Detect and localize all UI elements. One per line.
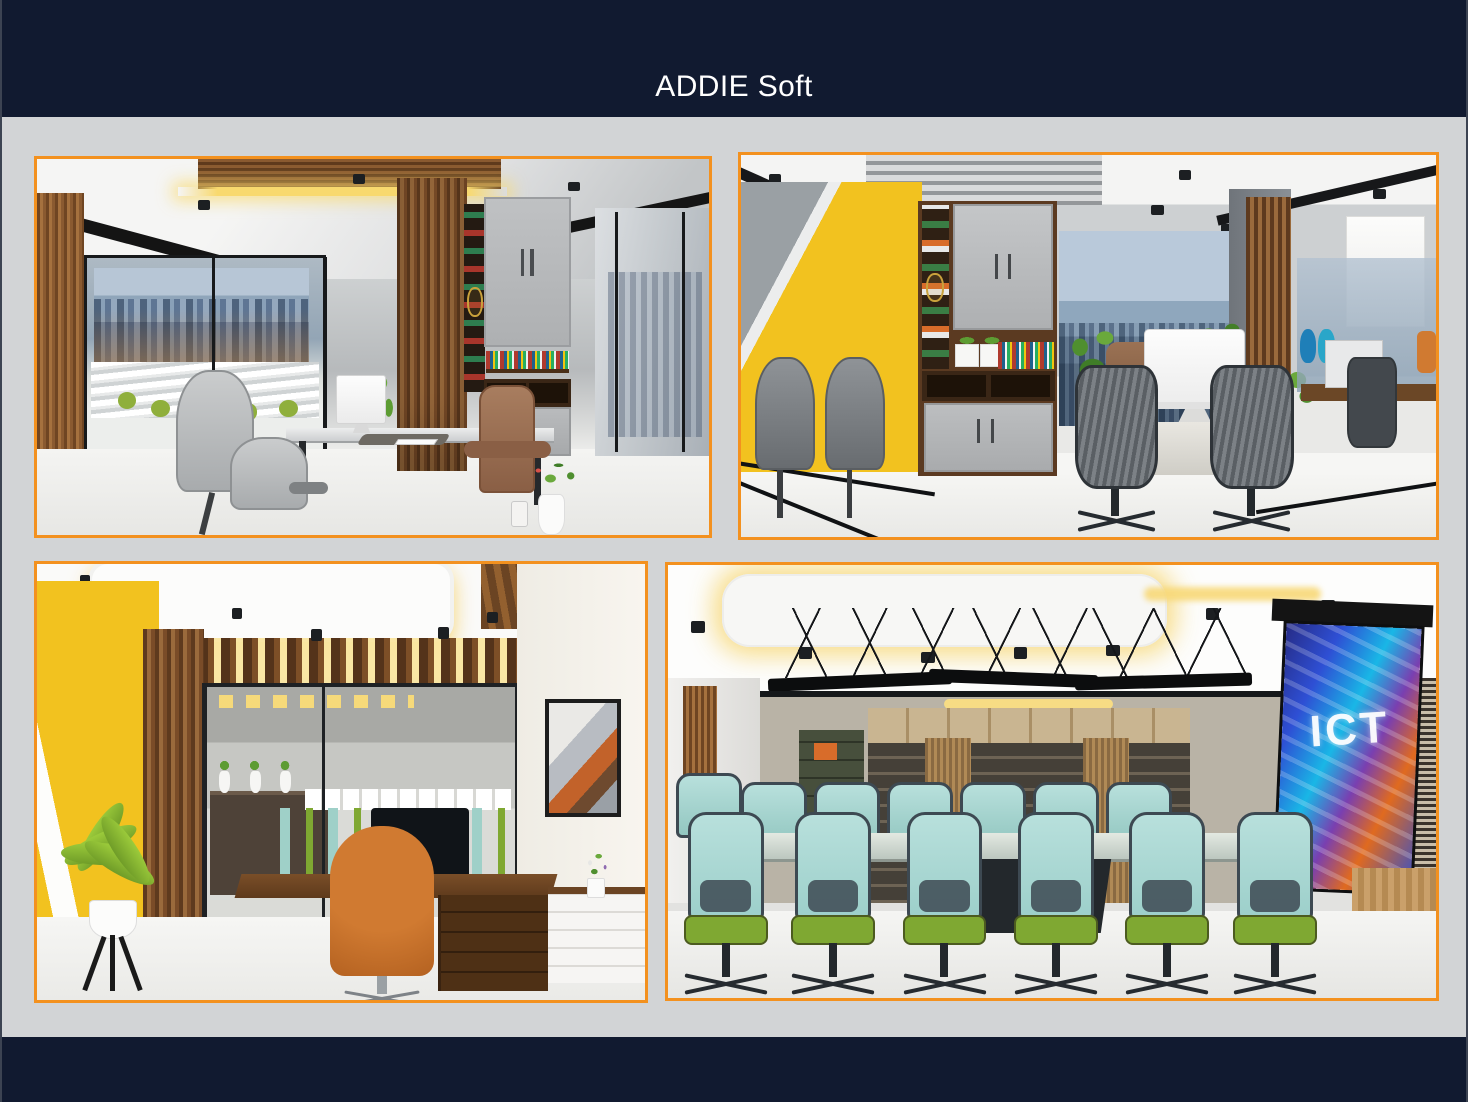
glass-frame bbox=[202, 686, 206, 921]
chair-back bbox=[1075, 365, 1158, 489]
chair-back bbox=[330, 826, 434, 976]
coffee-mug bbox=[511, 501, 528, 527]
header-bar: ADDIE Soft bbox=[0, 0, 1468, 117]
spotlight bbox=[1179, 170, 1192, 180]
cabinet-handle bbox=[995, 254, 998, 279]
render-conference-room: ICT bbox=[665, 562, 1439, 1001]
spotlight bbox=[438, 627, 449, 638]
spotlight bbox=[487, 612, 498, 623]
lower-cabinet-doors bbox=[924, 403, 1053, 472]
chair-post bbox=[847, 470, 852, 518]
overhead-cabinets bbox=[868, 708, 1191, 743]
chair-post bbox=[377, 976, 386, 994]
conference-chair bbox=[783, 812, 883, 998]
white-drawer-cabinet bbox=[548, 887, 645, 983]
black-mesh-chair bbox=[1200, 365, 1304, 537]
spotlight bbox=[568, 182, 580, 192]
chair-seat bbox=[1233, 915, 1317, 945]
white-vase bbox=[280, 771, 291, 793]
open-plan-office-scene bbox=[37, 159, 709, 535]
chair-leg bbox=[198, 492, 214, 535]
chair-back bbox=[795, 812, 871, 924]
plant-sprig bbox=[247, 758, 262, 773]
marble-floor bbox=[37, 449, 709, 535]
small-pot bbox=[587, 878, 605, 898]
white-vase bbox=[250, 771, 261, 793]
chair-back bbox=[907, 812, 983, 924]
dark-office-chair bbox=[1336, 357, 1412, 495]
page-title: ADDIE Soft bbox=[0, 70, 1468, 104]
gold-wire-vase bbox=[926, 273, 944, 302]
gold-wire-vase bbox=[467, 287, 483, 317]
city-reflection bbox=[608, 272, 702, 437]
chair-back bbox=[1347, 357, 1397, 448]
planter-box bbox=[955, 344, 979, 367]
chair-armrest bbox=[289, 482, 328, 494]
render-executive-office bbox=[34, 561, 648, 1003]
plant-sprig bbox=[278, 758, 293, 773]
inner-workstations bbox=[305, 789, 512, 811]
spotlight bbox=[691, 621, 705, 632]
yellow-accent-office-scene bbox=[741, 155, 1436, 537]
conference-room-scene: ICT bbox=[668, 565, 1436, 998]
chair-base bbox=[903, 975, 987, 993]
spotlight bbox=[1151, 205, 1164, 215]
chair-back bbox=[825, 357, 885, 469]
pendant-wires bbox=[768, 608, 1252, 677]
chair-back bbox=[1018, 812, 1094, 924]
conference-chair bbox=[1117, 812, 1217, 998]
chair-post bbox=[1163, 943, 1171, 977]
conference-chair bbox=[1225, 812, 1325, 998]
spotlight bbox=[311, 629, 322, 640]
render-yellow-accent-workspace bbox=[738, 152, 1439, 540]
chair-back bbox=[1237, 812, 1313, 924]
orange-storage-box bbox=[814, 743, 837, 760]
chair-base bbox=[344, 994, 420, 1000]
upper-cabinet-doors bbox=[953, 204, 1053, 330]
desk-pedestal bbox=[438, 895, 547, 991]
chair-back bbox=[688, 812, 764, 924]
book-row bbox=[486, 351, 569, 374]
chair-base bbox=[684, 975, 768, 993]
city-warm-glow bbox=[94, 309, 309, 365]
chair-seat bbox=[1125, 915, 1209, 945]
chair-post bbox=[777, 470, 782, 518]
cubby-opening bbox=[991, 375, 1050, 397]
cabinet-handle bbox=[1008, 254, 1011, 279]
slide: ADDIE Soft bbox=[0, 0, 1468, 1102]
projection-screen-text: ICT bbox=[1281, 701, 1419, 759]
chair-base bbox=[1212, 513, 1291, 530]
keyboard bbox=[394, 439, 439, 445]
black-mesh-chair bbox=[1064, 365, 1168, 537]
spotlight bbox=[1373, 189, 1386, 199]
glass-frame bbox=[615, 212, 618, 453]
chair-post bbox=[1052, 943, 1060, 977]
chair-back bbox=[755, 357, 815, 469]
glass-frame bbox=[84, 257, 87, 453]
render-open-plan-office bbox=[34, 156, 712, 538]
cubby-opening bbox=[927, 375, 986, 397]
inner-ceiling-lights bbox=[219, 695, 414, 708]
conference-chair bbox=[1006, 812, 1106, 998]
chair-base bbox=[791, 975, 875, 993]
plant-sprig bbox=[955, 335, 979, 346]
green-task-chair bbox=[279, 400, 298, 417]
chair-back bbox=[1210, 365, 1293, 489]
chair-post bbox=[940, 943, 948, 977]
gray-task-chair bbox=[218, 437, 332, 535]
cabinet-handle bbox=[977, 419, 980, 444]
chair-seat bbox=[1014, 915, 1098, 945]
glass-frame bbox=[323, 257, 326, 453]
chair-back bbox=[230, 437, 308, 509]
spotlight bbox=[353, 174, 365, 184]
orange-executive-chair bbox=[323, 826, 442, 1000]
orange-chair bbox=[1417, 331, 1436, 373]
upper-cabinet bbox=[484, 197, 571, 347]
chair-base bbox=[1125, 975, 1209, 993]
chair-base bbox=[1077, 513, 1156, 530]
spotlight bbox=[198, 200, 210, 210]
conference-chair bbox=[895, 812, 995, 998]
white-planter-pot bbox=[89, 900, 138, 939]
plant-sprig bbox=[217, 758, 232, 773]
cabinet-handle bbox=[530, 249, 533, 275]
chair-base bbox=[1014, 975, 1098, 993]
spotlight bbox=[232, 608, 243, 619]
chair-base bbox=[1233, 975, 1317, 993]
conference-chair bbox=[676, 812, 776, 998]
chair-back bbox=[1129, 812, 1205, 924]
blue-vase bbox=[1300, 329, 1317, 363]
chair-post bbox=[1271, 943, 1279, 977]
book-row bbox=[998, 342, 1054, 369]
shelf-cubbies bbox=[922, 371, 1055, 402]
framed-artwork bbox=[545, 699, 622, 817]
glass-frame-top bbox=[202, 683, 518, 686]
glass-frame bbox=[682, 212, 685, 453]
executive-office-scene bbox=[37, 564, 645, 1000]
footer-bar bbox=[0, 1037, 1468, 1102]
cabinet-handle bbox=[521, 249, 524, 275]
glass-frame-top bbox=[84, 255, 326, 258]
glass-frame-top bbox=[760, 691, 1282, 697]
chair-seat bbox=[903, 915, 987, 945]
chair-seat bbox=[684, 915, 768, 945]
gray-mesh-chair bbox=[811, 357, 901, 517]
cabinet-handle bbox=[991, 419, 994, 444]
chair-post bbox=[829, 943, 837, 977]
chair-post bbox=[722, 943, 730, 977]
chair-seat bbox=[791, 915, 875, 945]
white-vase bbox=[219, 771, 230, 793]
white-vase bbox=[538, 494, 565, 535]
plant-stand-leg bbox=[110, 935, 115, 992]
imac-monitor bbox=[336, 375, 386, 424]
